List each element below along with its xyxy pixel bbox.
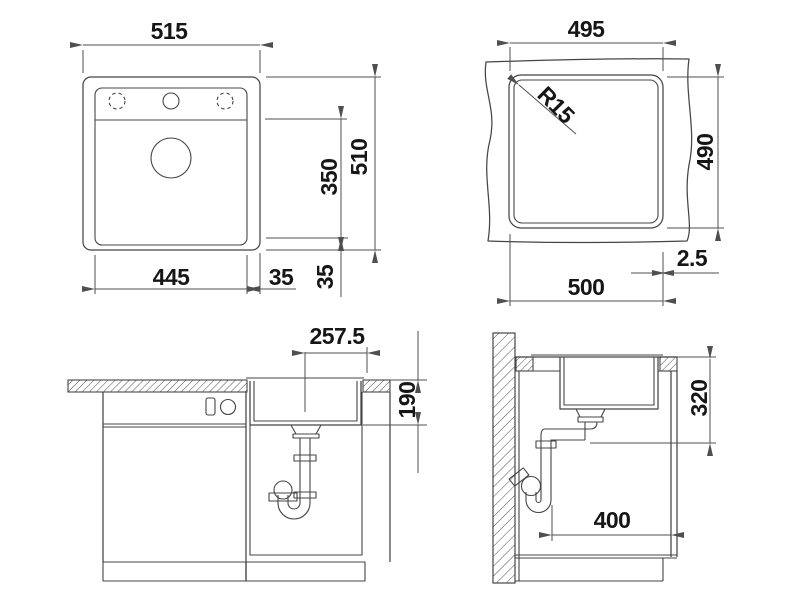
- strainer-icon: [291, 425, 321, 434]
- plinth-right: [246, 562, 365, 581]
- countertop-front-section: [660, 357, 677, 371]
- dim-515-label: 515: [151, 18, 189, 44]
- dim-bowl-depth: 350: [265, 119, 348, 238]
- dim-bowl-inner-depth: 190: [363, 331, 427, 473]
- dim-overall-width: 515: [83, 18, 260, 73]
- strainer-side-icon: [576, 409, 605, 417]
- dim-257-5-label: 257.5: [309, 323, 365, 349]
- trap-side-outer: [526, 486, 551, 513]
- basin-side-inner: [564, 357, 654, 405]
- cutout-outer-outline: [509, 75, 663, 228]
- front-view: 257.5 190: [68, 323, 427, 581]
- side-view: 320 400: [493, 333, 716, 583]
- basin-side-outer: [560, 357, 658, 409]
- waste-pipe-top: [541, 429, 590, 486]
- dim-500-label: 500: [568, 274, 605, 300]
- dim-320-label: 320: [686, 380, 712, 417]
- trap-elbow-icon: [274, 481, 292, 499]
- dim-35-right-label: 35: [312, 264, 338, 289]
- countertop-left-section: [68, 380, 247, 392]
- cabinet-front-line: [671, 371, 677, 557]
- dim-install-depth: 400: [552, 505, 671, 541]
- drain-icon: [151, 138, 191, 178]
- dim-495-label: 495: [568, 16, 606, 42]
- dim-cabinet-width: 500: [510, 234, 663, 306]
- cutout-view: R15 495 490 2.5 500: [485, 16, 724, 306]
- siphon-front: [269, 425, 321, 519]
- tap-hole-center-icon: [163, 93, 179, 109]
- dim-drain-offset: 257.5: [305, 323, 367, 373]
- tap-hole-right-icon: [217, 93, 233, 109]
- dim-cutout-depth: 490: [667, 77, 724, 228]
- countertop-outline: [485, 59, 691, 243]
- dim-190-label: 190: [394, 382, 420, 419]
- sink-bowl-outline: [95, 88, 247, 245]
- dishwasher-knob-icon: [221, 400, 236, 415]
- dim-445-label: 445: [153, 264, 191, 290]
- cabinet-bottom-line: [515, 555, 677, 558]
- dim-edge-right: 35: [312, 250, 341, 297]
- dim-bowl-width: 445: [95, 255, 247, 294]
- dim-cutout-width: 495: [510, 16, 663, 71]
- dim-corner-radius: R15: [519, 81, 580, 134]
- drawing-svg: 515 510 350 35 445 35: [0, 0, 800, 600]
- dim-35-bottom-label: 35: [269, 264, 294, 290]
- tailpipe: [300, 438, 310, 503]
- plinth-left: [103, 562, 246, 581]
- dishwasher-control-icon: [206, 398, 215, 415]
- countertop-back-section: [516, 357, 533, 371]
- countertop-right-section: [363, 380, 390, 392]
- sink-cabinet-opening: [250, 392, 362, 555]
- tap-hole-left-icon: [109, 93, 125, 109]
- dim-510-label: 510: [346, 139, 372, 176]
- dim-r15-label: R15: [532, 81, 580, 129]
- sink-technical-drawing: 515 510 350 35 445 35: [0, 0, 800, 600]
- dim-490-label: 490: [692, 134, 718, 171]
- dim-install-height: 320: [590, 359, 716, 443]
- dim-edge-bottom: 35: [260, 253, 296, 294]
- dim-edge-offset: 2.5: [631, 245, 719, 306]
- trap-side-elbow-icon: [522, 477, 541, 496]
- siphon-side: [509, 409, 605, 513]
- dim-350-label: 350: [316, 159, 342, 196]
- trap-outlet-collar: [269, 493, 297, 501]
- top-view: 515 510 350 35 445 35: [83, 18, 381, 297]
- dim-400-label: 400: [594, 507, 631, 533]
- wall-section: [493, 333, 515, 583]
- dim-2-5-label: 2.5: [677, 245, 708, 271]
- cabinet-plinth-line: [515, 558, 663, 581]
- dishwasher-door-line: [103, 424, 246, 427]
